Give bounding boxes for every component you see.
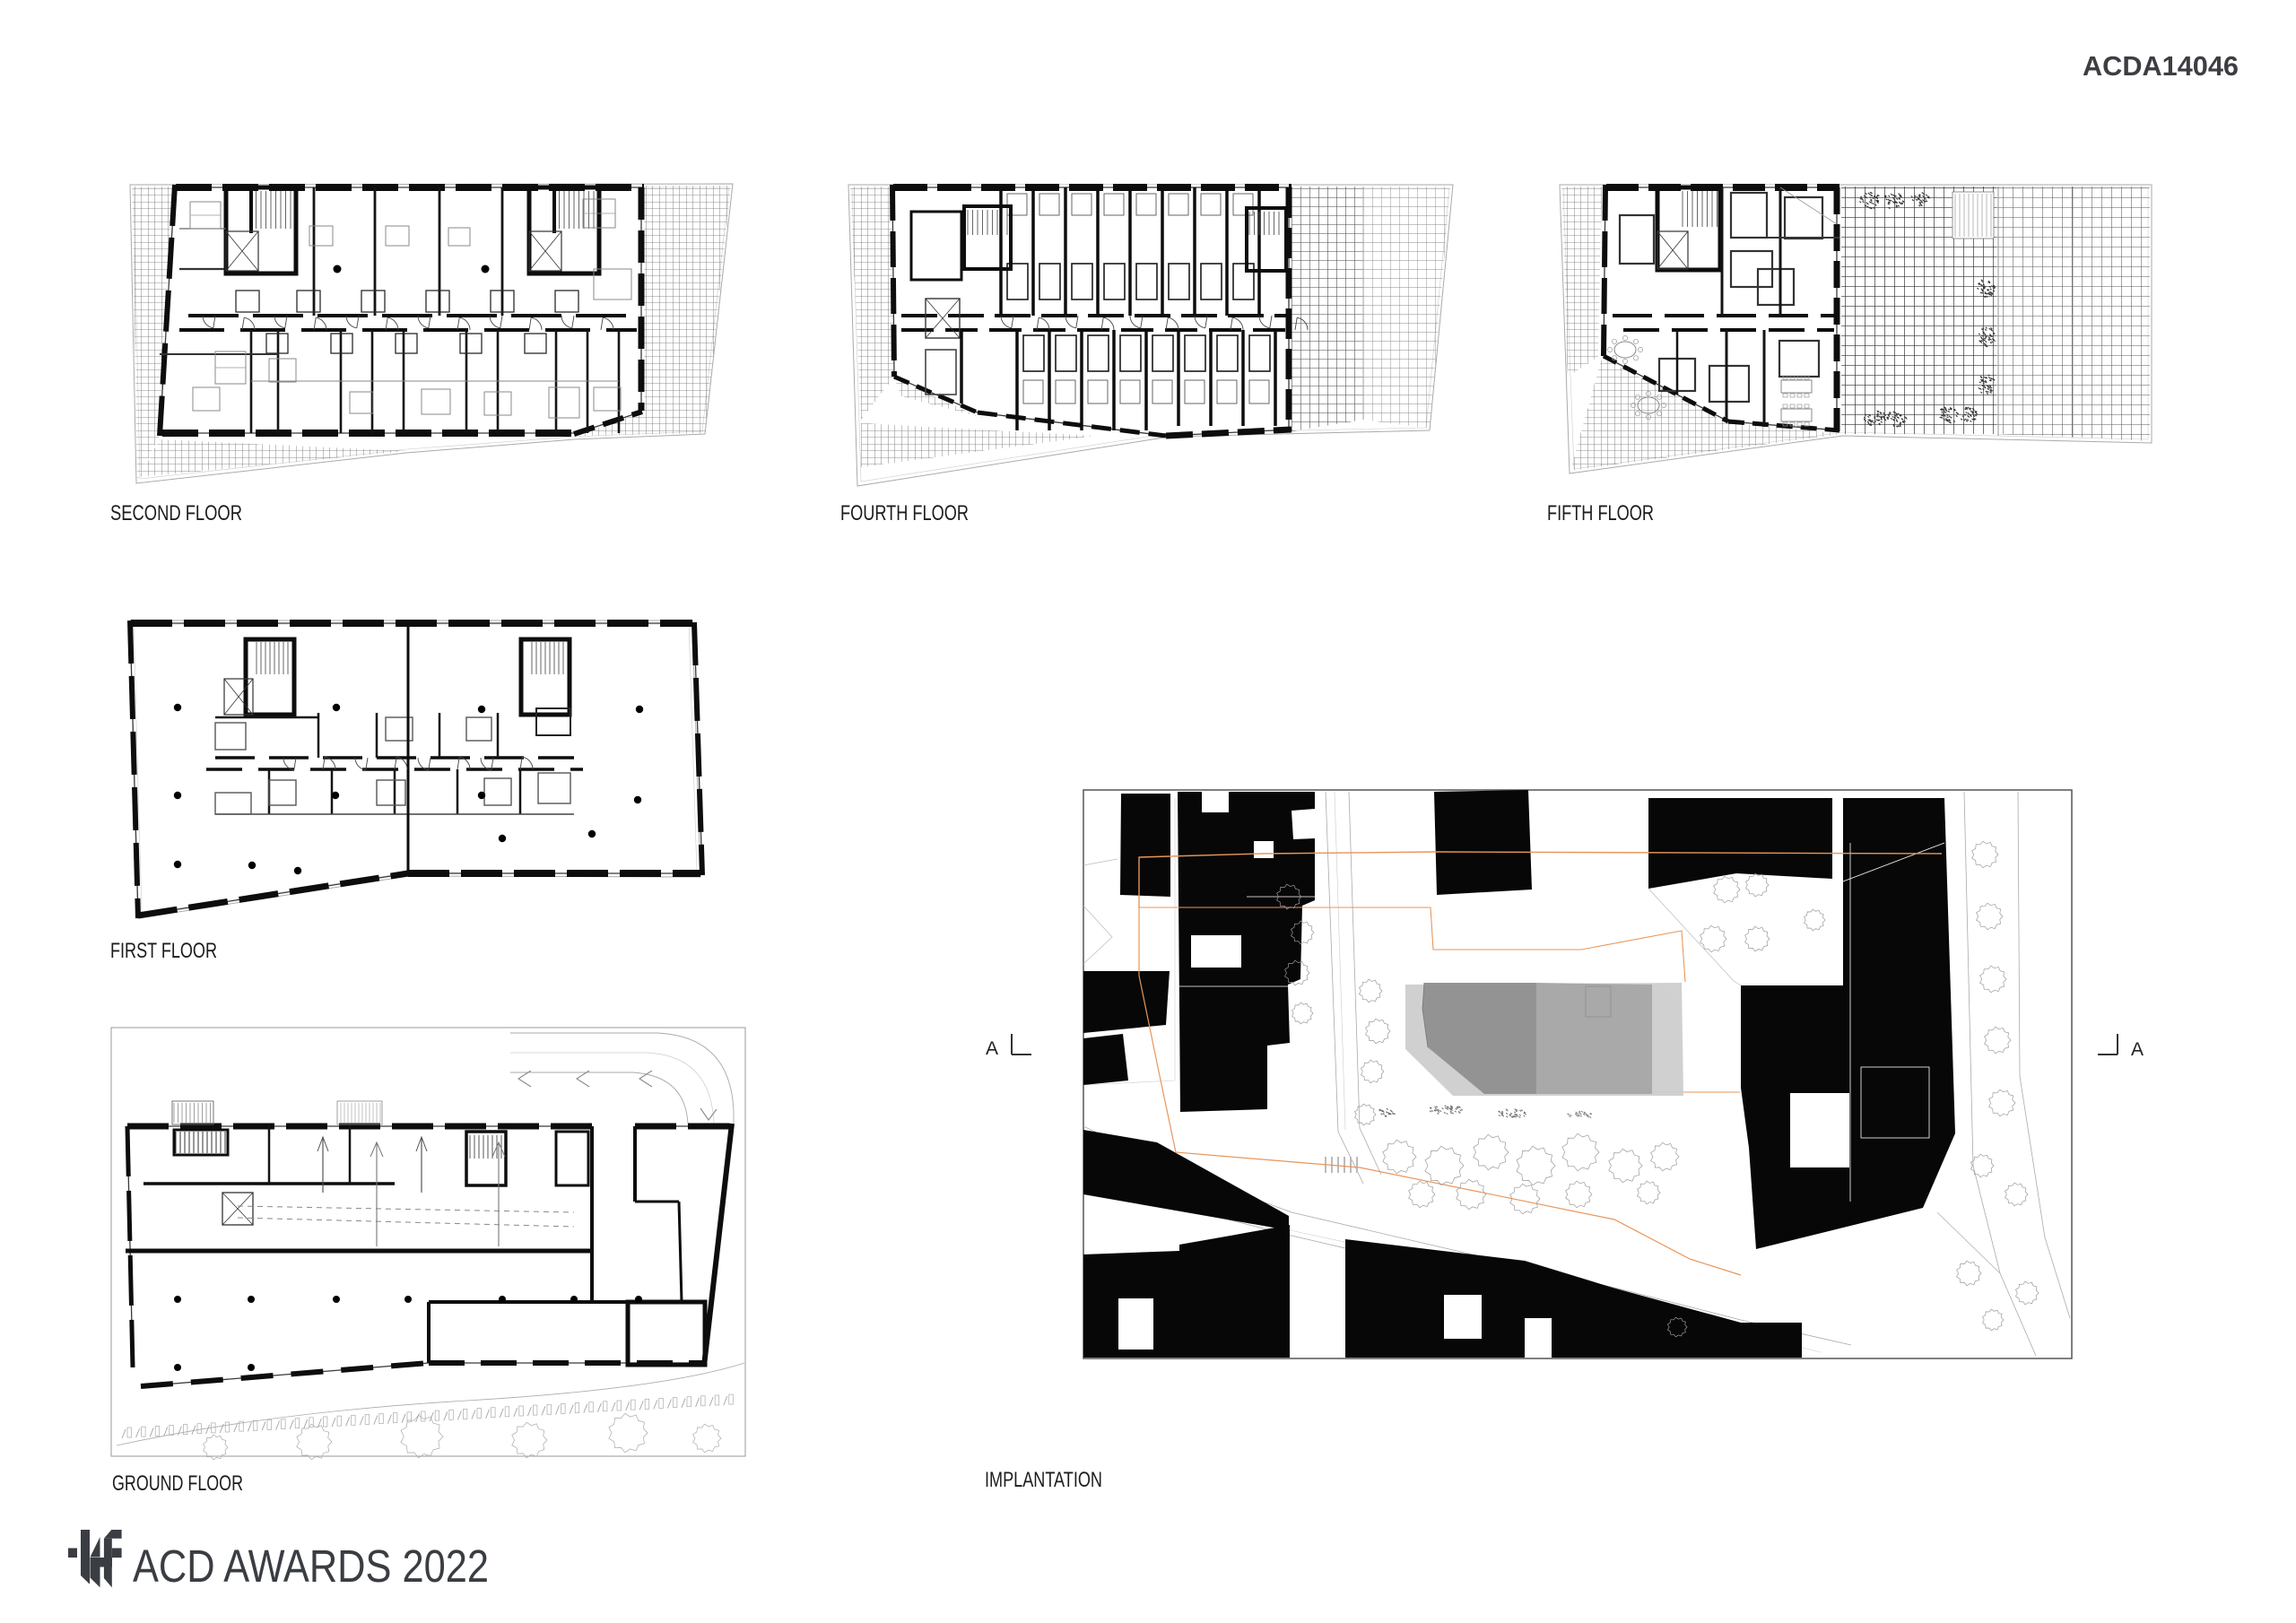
svg-text:ACD AWARDS 2022: ACD AWARDS 2022 <box>133 1541 489 1592</box>
svg-text:FIRST FLOOR: FIRST FLOOR <box>110 939 217 963</box>
svg-text:IMPLANTATION: IMPLANTATION <box>985 1468 1102 1492</box>
svg-text:FOURTH FLOOR: FOURTH FLOOR <box>840 501 969 525</box>
svg-text:GROUND FLOOR: GROUND FLOOR <box>112 1471 243 1496</box>
svg-text:ACDA14046: ACDA14046 <box>2083 50 2239 82</box>
svg-text:FIFTH FLOOR: FIFTH FLOOR <box>1547 501 1654 525</box>
svg-text:A: A <box>2131 1039 2144 1060</box>
svg-text:A: A <box>986 1038 998 1059</box>
svg-text:SECOND FLOOR: SECOND FLOOR <box>110 501 242 525</box>
